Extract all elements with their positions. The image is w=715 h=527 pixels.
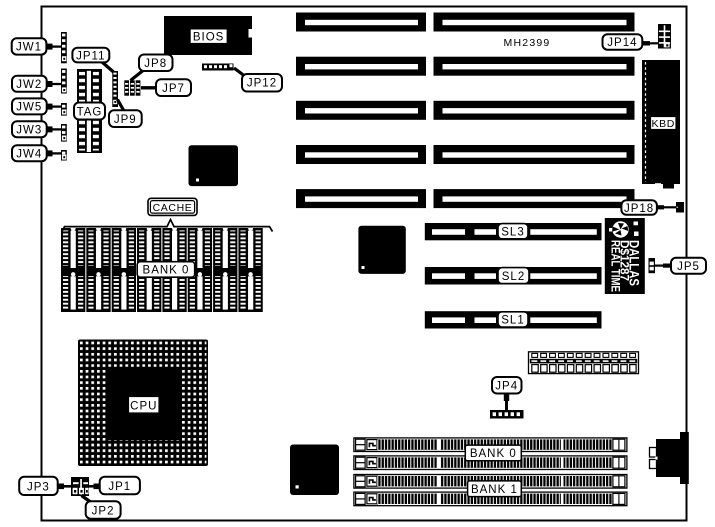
svg-text:KBD: KBD: [652, 118, 675, 130]
svg-text:JW2: JW2: [16, 79, 42, 91]
svg-text:BANK 1: BANK 1: [471, 484, 518, 496]
svg-text:JW3: JW3: [16, 124, 42, 136]
svg-text:MH2399: MH2399: [504, 37, 551, 49]
svg-text:CACHE: CACHE: [153, 202, 193, 214]
svg-text:JP2: JP2: [92, 506, 115, 518]
svg-text:JP12: JP12: [247, 78, 277, 90]
svg-text:JW1: JW1: [16, 42, 42, 54]
svg-text:TAG: TAG: [77, 107, 103, 119]
svg-text:CPU: CPU: [130, 400, 157, 412]
svg-text:JP11: JP11: [76, 50, 105, 62]
svg-text:JP5: JP5: [677, 261, 700, 273]
svg-text:JW5: JW5: [16, 102, 42, 114]
svg-text:JP9: JP9: [114, 114, 137, 126]
svg-text:SL2: SL2: [502, 271, 525, 283]
svg-text:JP14: JP14: [607, 37, 637, 49]
svg-text:REAL TIME: REAL TIME: [608, 240, 620, 292]
svg-text:JP7: JP7: [162, 83, 185, 95]
svg-text:JW4: JW4: [16, 148, 42, 160]
svg-text:SL3: SL3: [501, 226, 524, 238]
svg-text:JP8: JP8: [144, 58, 167, 70]
svg-text:JP3: JP3: [27, 481, 50, 493]
svg-text:JP18: JP18: [624, 203, 654, 215]
svg-text:SL1: SL1: [501, 315, 524, 327]
svg-text:JP1: JP1: [108, 481, 131, 493]
svg-text:JP4: JP4: [495, 381, 518, 393]
svg-text:BANK 0: BANK 0: [470, 448, 517, 460]
svg-text:BIOS: BIOS: [193, 32, 224, 44]
svg-text:BANK 0: BANK 0: [143, 265, 190, 277]
